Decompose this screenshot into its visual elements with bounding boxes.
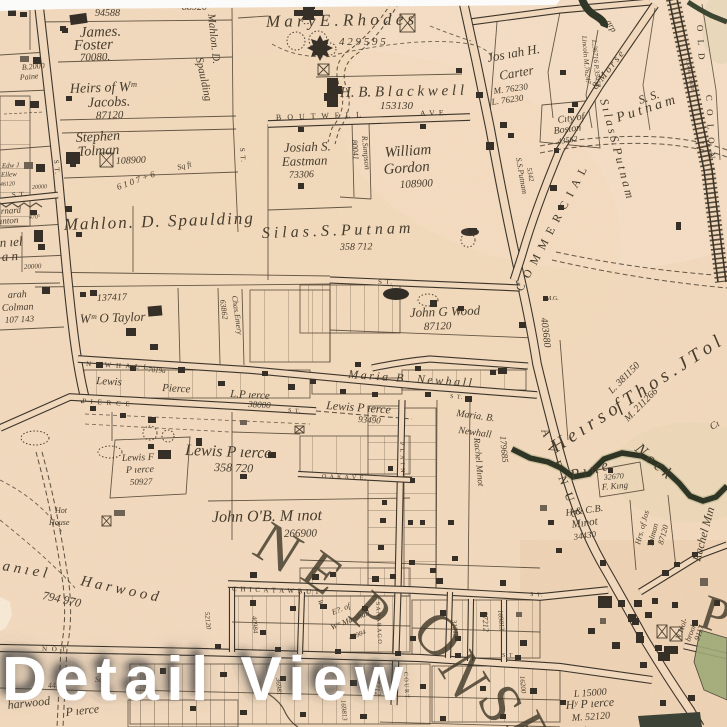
svg-text:Detail View: Detail View (2, 645, 411, 714)
